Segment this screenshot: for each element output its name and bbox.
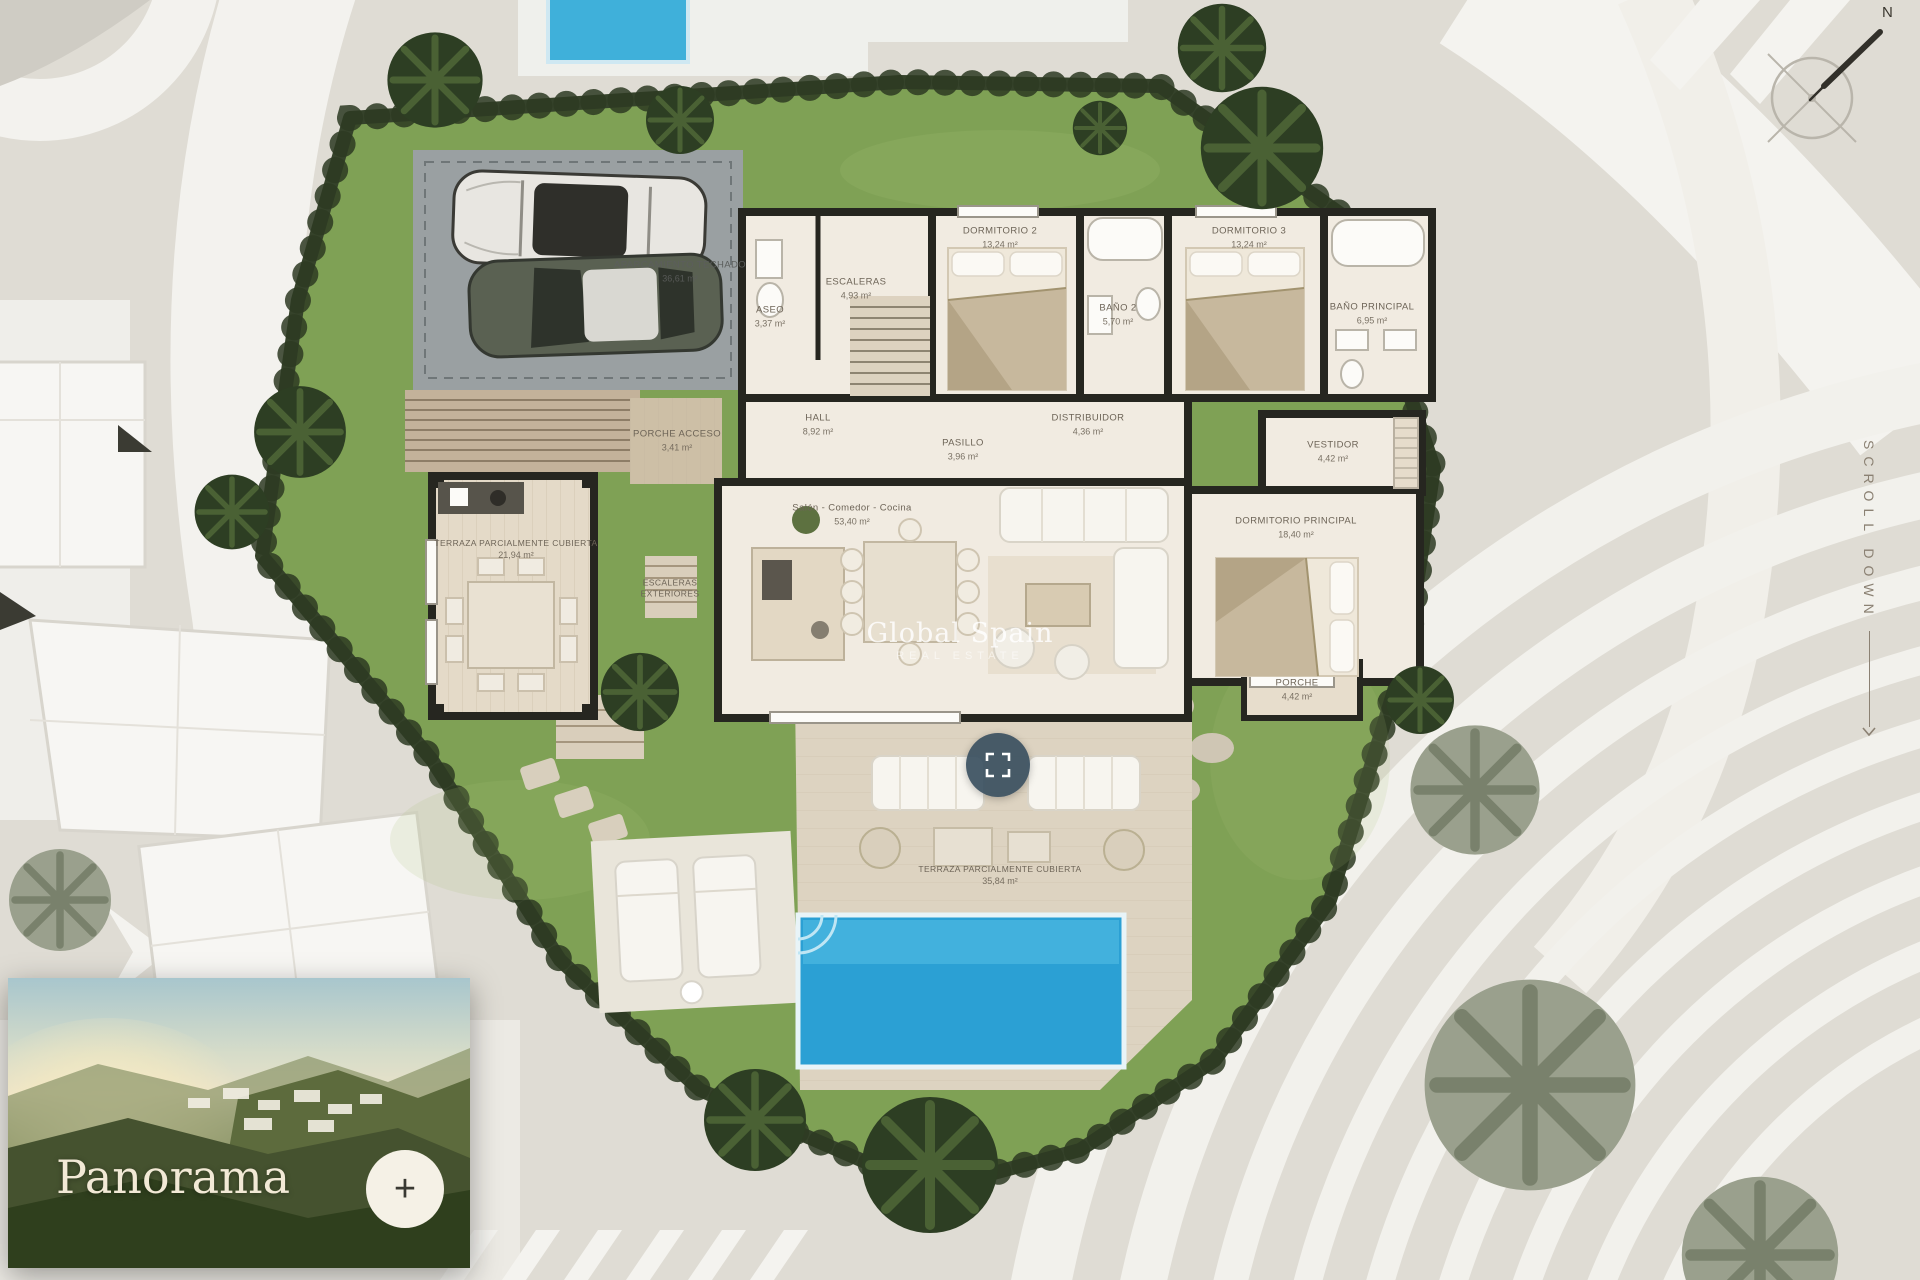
scroll-down-indicator: SCROLL DOWN [1846,440,1892,740]
fullscreen-button[interactable] [966,733,1030,797]
cars [452,170,723,358]
plus-icon: + [394,1170,416,1208]
scroll-down-line [1869,631,1870,727]
panorama-thumbnail[interactable]: Panorama + [8,978,470,1268]
scroll-down-label: SCROLL DOWN [1861,440,1877,621]
panorama-expand-button[interactable]: + [366,1150,444,1228]
scroll-down-arrow-icon [1862,727,1876,737]
fullscreen-icon [985,752,1011,778]
panorama-title: Panorama [56,1150,290,1204]
